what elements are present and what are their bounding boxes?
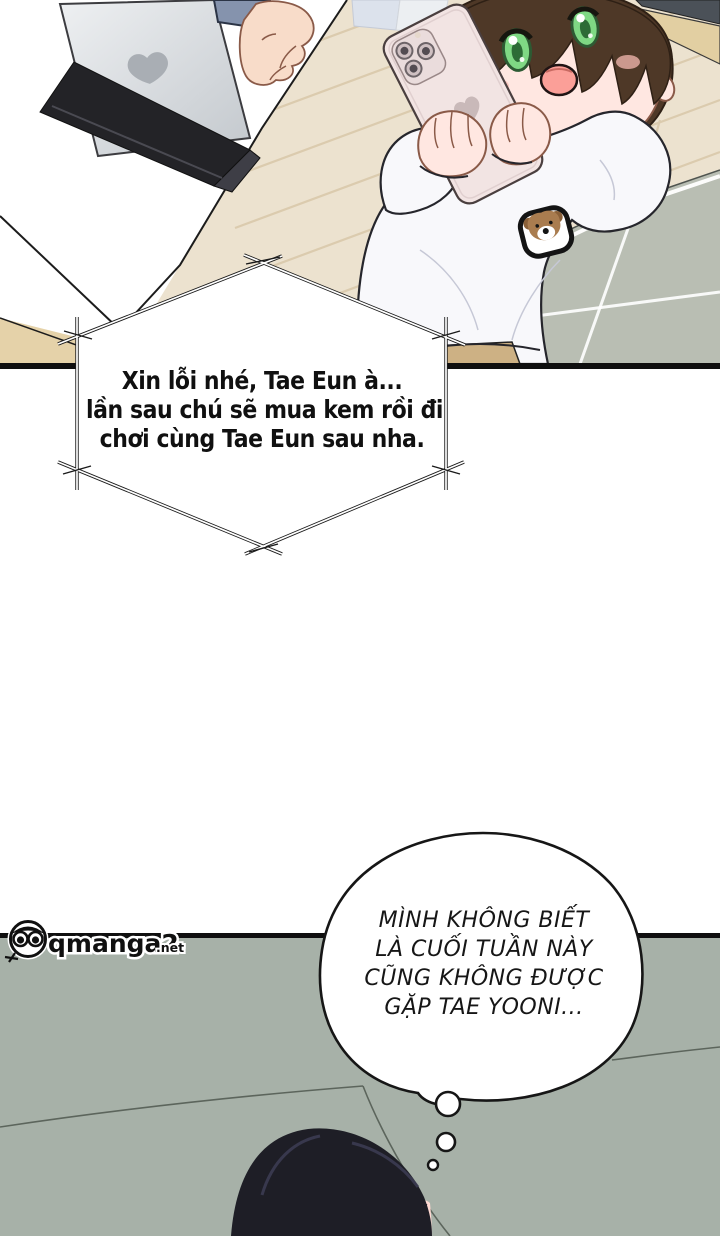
speech-line-1: Xin lỗi nhé, Tae Eun à...	[86, 366, 438, 395]
thought-trail-circle-2	[428, 1160, 438, 1170]
thought-line-1: MÌNH KHÔNG BIẾT	[338, 906, 630, 935]
speech-line-3: chơi cùng Tae Eun sau nha.	[86, 424, 438, 453]
child-mouth	[541, 65, 577, 95]
child-blush-right	[616, 55, 640, 69]
owl-icon	[5, 919, 49, 963]
thought-trail-circle-1	[437, 1133, 455, 1151]
manga-page: Xin lỗi nhé, Tae Eun à... lần sau chú sẽ…	[0, 0, 720, 1236]
thought-line-3: CŨNG KHÔNG ĐƯỢC	[338, 964, 630, 993]
speech-line-2: lần sau chú sẽ mua kem rồi đi	[86, 395, 438, 424]
thought-line-2: LÀ CUỐI TUẦN NÀY	[338, 935, 630, 964]
watermark: qmanga2 .net	[4, 912, 194, 968]
thought-bump	[436, 1092, 460, 1116]
speech-bubble-text: Xin lỗi nhé, Tae Eun à... lần sau chú sẽ…	[86, 366, 438, 453]
thought-line-4: GẶP TAE YOONI...	[338, 993, 630, 1022]
thought-bubble-text: MÌNH KHÔNG BIẾT LÀ CUỐI TUẦN NÀY CŨNG KH…	[338, 906, 630, 1022]
thought-bubble	[300, 815, 670, 1236]
watermark-site-tld: .net	[156, 940, 184, 955]
